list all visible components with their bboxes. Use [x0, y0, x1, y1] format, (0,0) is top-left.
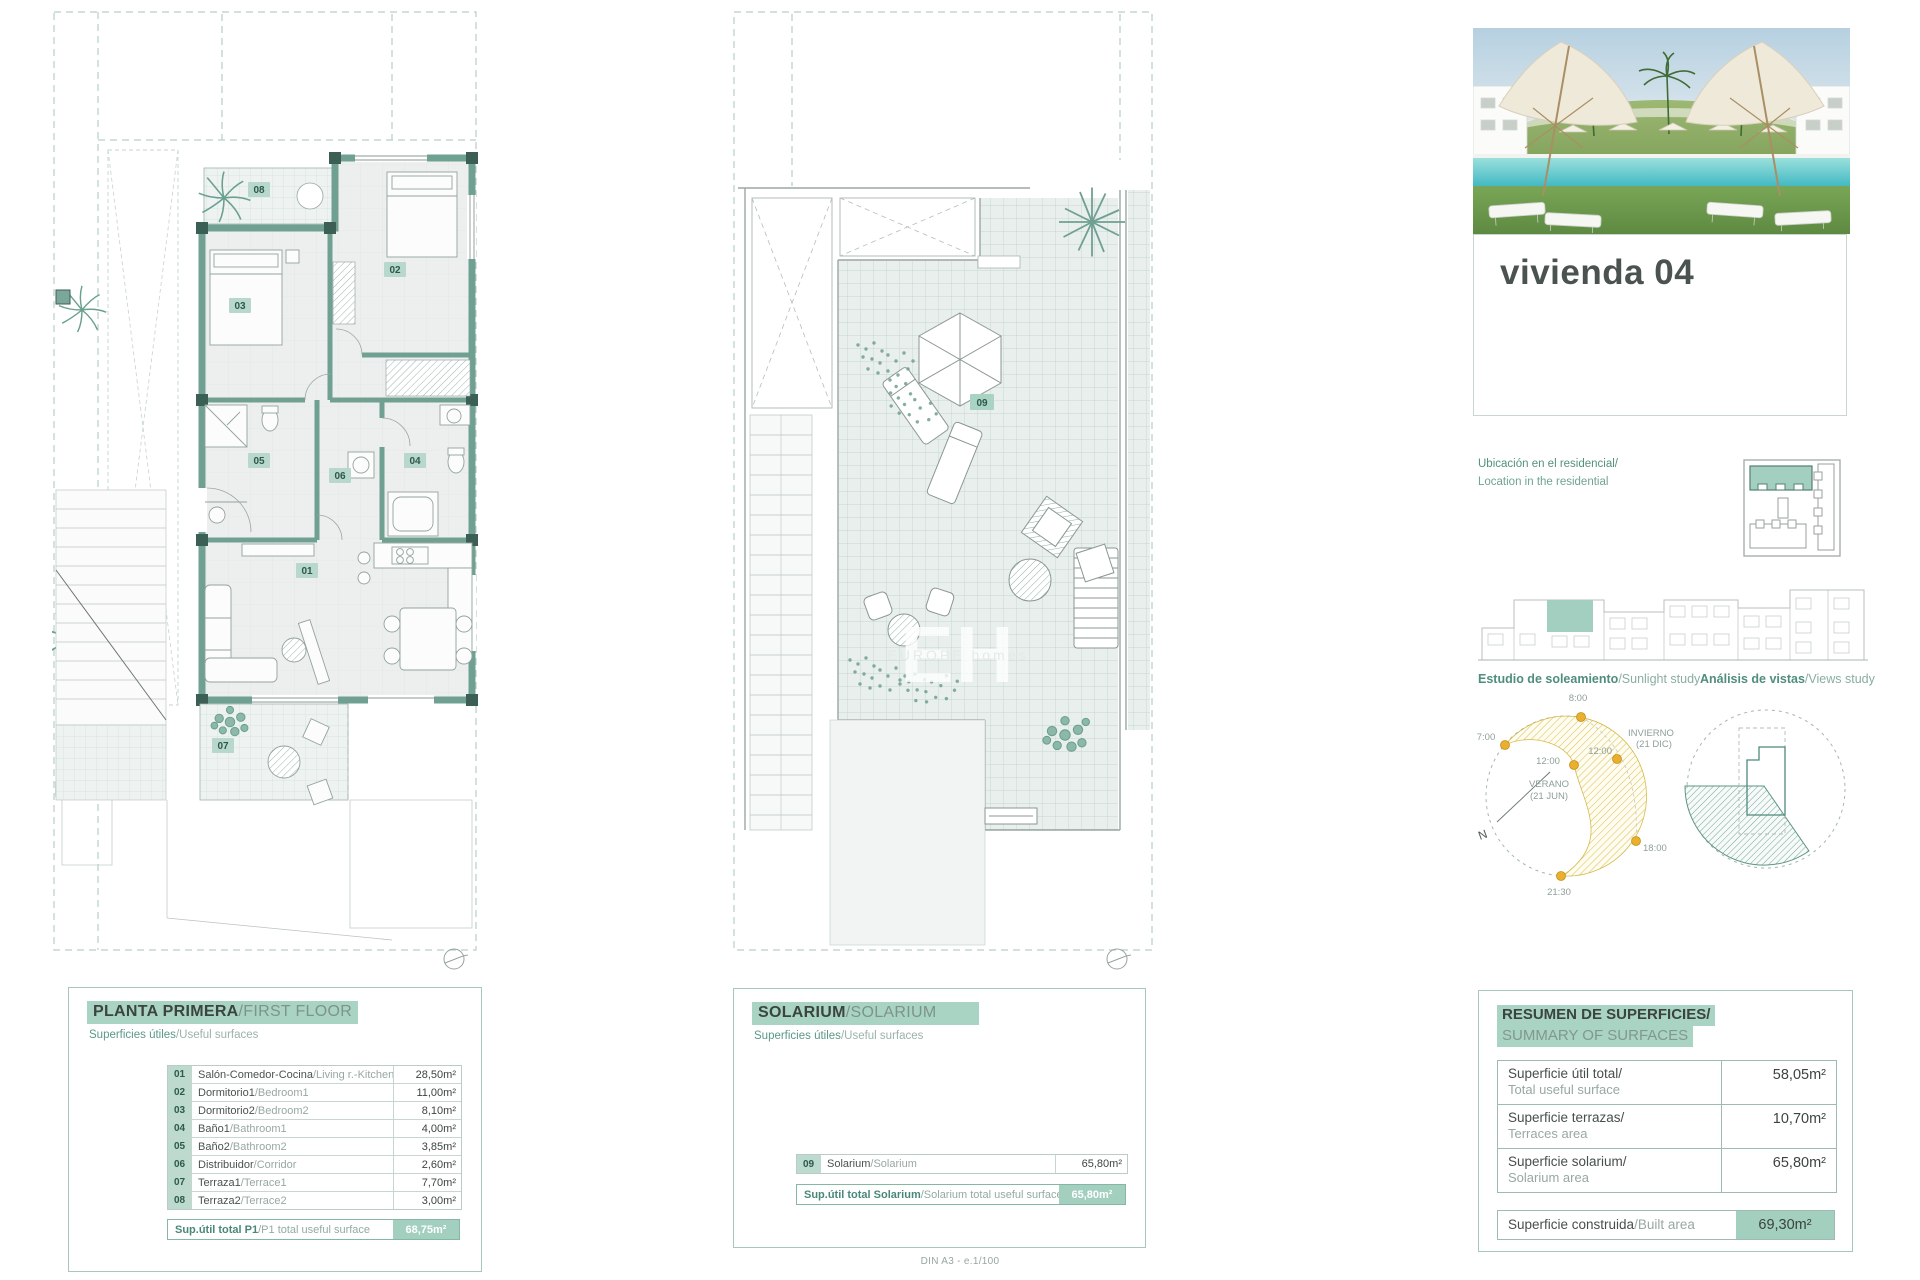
room-label-07: 07: [217, 741, 229, 752]
residencial-render-photo: [1473, 28, 1850, 234]
row-code: 07: [168, 1174, 192, 1191]
total-label: Sup.útil total Solarium/Solarium total u…: [797, 1185, 1059, 1204]
row-value: 65,80m²: [1056, 1155, 1127, 1173]
subtitle-en: /Useful surfaces: [841, 1030, 923, 1042]
row-name: Salón-Comedor-Cocina/Living r.-Kitchen: [192, 1066, 394, 1083]
row-code: 03: [168, 1102, 192, 1119]
solarium-table: 09 Solarium/Solarium 65,80m²: [796, 1154, 1128, 1174]
views-study-diagram: [1682, 690, 1882, 890]
solarium-subtitle: Superficies útiles/Useful surfaces: [752, 1030, 1127, 1042]
unit-title: vivienda 04: [1500, 253, 1820, 293]
room-label-02: 02: [389, 265, 401, 276]
watermark-name: EUROPE homes: [887, 647, 1028, 663]
lower-outline: [62, 800, 472, 940]
unit-title-box: vivienda 04: [1473, 234, 1847, 416]
views-study-heading: Análisis de vistas/Views study: [1700, 672, 1875, 686]
first-floor-total-row: Sup.útil total P1/P1 total useful surfac…: [167, 1219, 460, 1240]
location-line-en: Location in the residential: [1478, 474, 1618, 492]
summary-label: Superficie solarium/Solarium area: [1498, 1149, 1722, 1192]
table-row: 01Salón-Comedor-Cocina/Living r.-Kitchen…: [168, 1066, 461, 1083]
built-area-value: 69,30m²: [1736, 1211, 1834, 1239]
solarium-total-row: Sup.útil total Solarium/Solarium total u…: [796, 1184, 1126, 1205]
room-label-04: 04: [409, 456, 421, 467]
room-label-05: 05: [253, 456, 265, 467]
row-name: Baño2/Bathroom2: [192, 1138, 394, 1155]
views-title-es: Análisis de vistas: [1700, 672, 1805, 686]
summary-table: Superficie útil total/Total useful surfa…: [1497, 1060, 1837, 1193]
row-value: 4,00m²: [394, 1120, 461, 1137]
solarium-title-es: SOLARIUM: [758, 1004, 846, 1021]
table-row: 07Terraza1/Terrace17,70m²: [168, 1173, 461, 1191]
wardrobe: [333, 262, 355, 324]
room-label-09: 09: [976, 398, 988, 409]
summary-title-line2: SUMMARY OF SURFACES: [1497, 1026, 1693, 1047]
row-name: Solarium/Solarium: [821, 1155, 1056, 1173]
section-marker-icon: [1103, 944, 1133, 974]
row-value: 11,00m²: [394, 1084, 461, 1101]
room-label-08: 08: [253, 185, 265, 196]
closet: [386, 360, 470, 396]
table-row: 02Dormitorio1/Bedroom111,00m²: [168, 1083, 461, 1101]
time-12-winter: 12:00: [1588, 746, 1612, 757]
table-row: 04Baño1/Bathroom14,00m²: [168, 1119, 461, 1137]
summer-label-2: (21 JUN): [1530, 791, 1568, 802]
time-7: 7:00: [1477, 732, 1496, 743]
summary-title: RESUMEN DE SUPERFICIES/ SUMMARY OF SURFA…: [1497, 1005, 1834, 1047]
table-row: 06Distribuidor/Corridor2,60m²: [168, 1155, 461, 1173]
section-marker-icon: [440, 944, 470, 974]
table-row: 08Terraza2/Terrace23,00m²: [168, 1191, 461, 1209]
sunlight-study-diagram: 8:00 7:00 12:00 INVIERNO (21 DIC) 12:00 …: [1466, 684, 1701, 919]
views-title-en: /Views study: [1805, 672, 1875, 686]
watermark: EH EUROPE homes: [887, 610, 1028, 699]
row-code: 06: [168, 1156, 192, 1173]
highlighted-unit: [1547, 600, 1593, 632]
solarium-plan-drawing: EH EUROPE homes 09: [730, 10, 1160, 965]
solarium-panel: SOLARIUM/SOLARIUM Superficies útiles/Use…: [733, 988, 1146, 1248]
built-area-label: Superficie construida/Built area: [1498, 1211, 1736, 1239]
summary-panel: RESUMEN DE SUPERFICIES/ SUMMARY OF SURFA…: [1478, 990, 1853, 1252]
summary-value: 65,80m²: [1722, 1149, 1836, 1192]
table-row: 03Dormitorio2/Bedroom28,10m²: [168, 1101, 461, 1119]
time-2130: 21:30: [1547, 887, 1571, 898]
site-plan-diagram: [1742, 456, 1844, 560]
row-value: 3,85m²: [394, 1138, 461, 1155]
first-floor-panel: PLANTA PRIMERA/FIRST FLOOR Superficies ú…: [68, 987, 482, 1272]
total-value: 68,75m²: [393, 1220, 459, 1239]
scale-note: DIN A3 - e.1/100: [800, 1256, 1120, 1267]
built-area-row: Superficie construida/Built area 69,30m²: [1497, 1210, 1835, 1240]
summary-value: 58,05m²: [1722, 1061, 1836, 1104]
communal-stairs: [56, 490, 166, 800]
row-value: 7,70m²: [394, 1174, 461, 1191]
swimming-pool: [1473, 158, 1850, 188]
subtitle-en: /Useful surfaces: [176, 1029, 258, 1041]
row-code: 09: [797, 1155, 821, 1173]
row-name: Terraza2/Terrace2: [192, 1192, 394, 1209]
row-code: 02: [168, 1084, 192, 1101]
summary-row: Superficie solarium/Solarium area 65,80m…: [1498, 1148, 1836, 1192]
plan-sheet: 01 02 03 04 05 06 07 08 PLANTA PRIMERA/F…: [0, 0, 1920, 1280]
first-floor-plan-drawing: 01 02 03 04 05 06 07 08: [52, 10, 482, 965]
summary-value: 10,70m²: [1722, 1105, 1836, 1148]
solarium-title-en: /SOLARIUM: [846, 1004, 937, 1021]
time-18: 18:00: [1643, 843, 1667, 854]
north-label: N: [1476, 827, 1489, 843]
solarium-title: SOLARIUM/SOLARIUM: [752, 1002, 1127, 1025]
location-heading: Ubicación en el residencial/ Location in…: [1478, 456, 1618, 492]
elevation-diagram: [1478, 578, 1868, 666]
summary-row: Superficie terrazas/Terraces area 10,70m…: [1498, 1104, 1836, 1148]
room-label-03: 03: [234, 301, 246, 312]
row-name: Baño1/Bathroom1: [192, 1120, 394, 1137]
first-floor-subtitle: Superficies útiles/Useful surfaces: [87, 1029, 463, 1041]
pilaster: [56, 290, 70, 304]
subtitle-es: Superficies útiles: [89, 1029, 176, 1041]
row-code: 01: [168, 1066, 192, 1083]
table-row: 09 Solarium/Solarium 65,80m²: [797, 1155, 1127, 1173]
total-value: 65,80m²: [1059, 1185, 1125, 1204]
first-floor-title-en: /FIRST FLOOR: [239, 1003, 353, 1020]
row-value: 2,60m²: [394, 1156, 461, 1173]
row-name: Dormitorio2/Bedroom2: [192, 1102, 394, 1119]
first-floor-title-es: PLANTA PRIMERA: [93, 1003, 239, 1020]
winter-label-1: INVIERNO: [1628, 728, 1674, 739]
summer-label-1: VERANO: [1529, 779, 1569, 790]
first-floor-table: 01Salón-Comedor-Cocina/Living r.-Kitchen…: [167, 1065, 462, 1210]
summary-title-line1: RESUMEN DE SUPERFICIES/: [1497, 1005, 1715, 1026]
room-label-06: 06: [334, 471, 346, 482]
row-name: Dormitorio1/Bedroom1: [192, 1084, 394, 1101]
row-value: 3,00m²: [394, 1192, 461, 1209]
summary-label: Superficie útil total/Total useful surfa…: [1498, 1061, 1722, 1104]
summary-label: Superficie terrazas/Terraces area: [1498, 1105, 1722, 1148]
subtitle-es: Superficies útiles: [754, 1030, 841, 1042]
row-code: 04: [168, 1120, 192, 1137]
row-value: 8,10m²: [394, 1102, 461, 1119]
lower-roof-area: [830, 720, 985, 945]
stairs-strip: [750, 415, 812, 830]
pool-coping: [1473, 154, 1850, 158]
row-code: 08: [168, 1192, 192, 1209]
summary-row: Superficie útil total/Total useful surfa…: [1498, 1061, 1836, 1104]
row-code: 05: [168, 1138, 192, 1155]
location-line-es: Ubicación en el residencial/: [1478, 456, 1618, 474]
room-label-01: 01: [301, 566, 313, 577]
time-12-summer: 12:00: [1536, 756, 1560, 767]
first-floor-title: PLANTA PRIMERA/FIRST FLOOR: [87, 1001, 463, 1024]
table-row: 05Baño2/Bathroom23,85m²: [168, 1137, 461, 1155]
total-label: Sup.útil total P1/P1 total useful surfac…: [168, 1220, 393, 1239]
winter-label-2: (21 DIC): [1636, 739, 1672, 750]
sun-path-band: [1505, 716, 1647, 876]
row-value: 28,50m²: [394, 1066, 461, 1083]
row-name: Terraza1/Terrace1: [192, 1174, 394, 1191]
time-8: 8:00: [1569, 693, 1588, 704]
row-name: Distribuidor/Corridor: [192, 1156, 394, 1173]
